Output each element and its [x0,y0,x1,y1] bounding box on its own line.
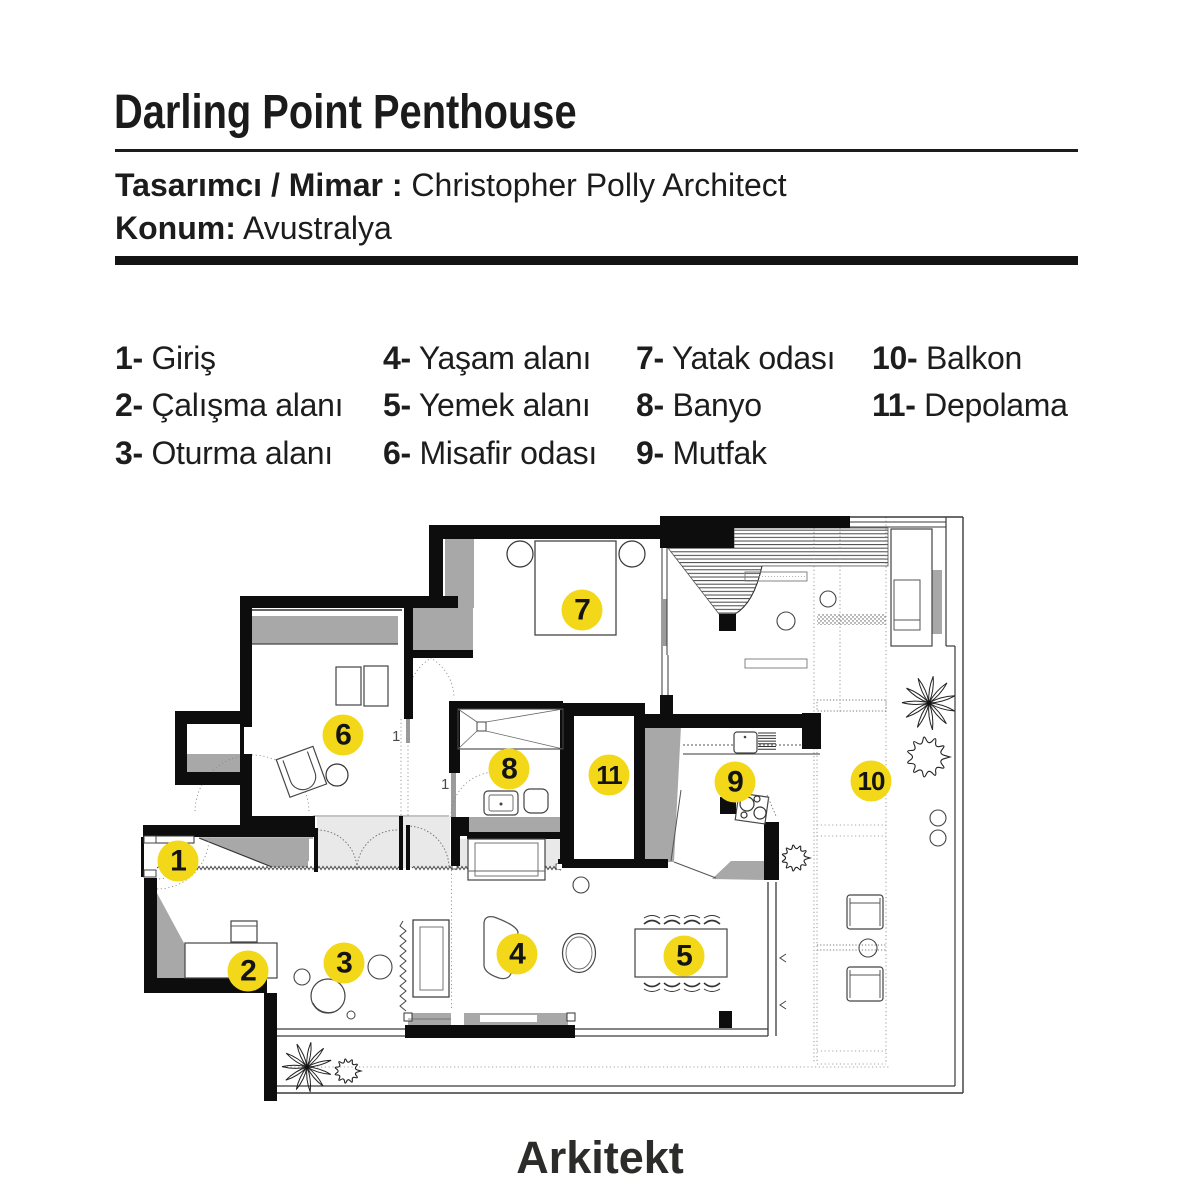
svg-text:5: 5 [676,940,692,973]
svg-text:8: 8 [501,753,517,786]
svg-text:7: 7 [574,594,590,627]
svg-text:6: 6 [335,719,351,752]
svg-text:11: 11 [596,760,622,790]
svg-text:2: 2 [240,955,256,988]
svg-text:4: 4 [509,938,526,971]
svg-text:1: 1 [170,845,186,878]
svg-text:3: 3 [336,947,352,980]
svg-text:1: 1 [441,776,449,793]
svg-text:1: 1 [392,728,400,745]
svg-text:9: 9 [727,766,743,799]
svg-text:10: 10 [858,766,885,796]
